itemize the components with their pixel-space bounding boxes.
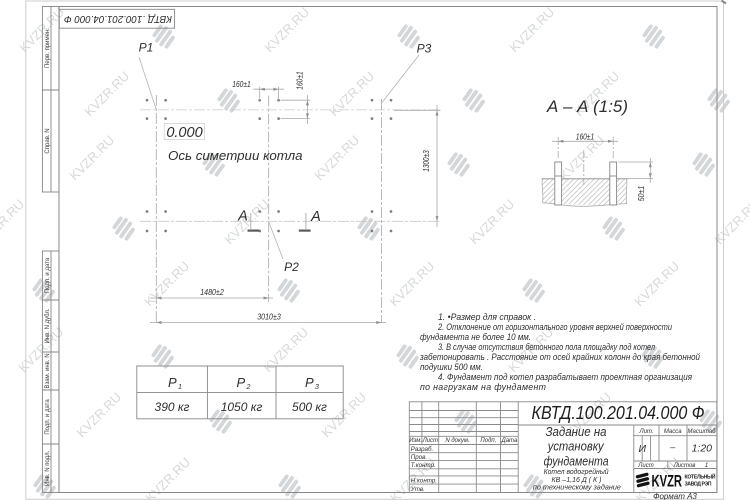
svg-text:–: – xyxy=(670,442,675,452)
svg-text:Дата: Дата xyxy=(500,438,517,444)
svg-text:160±1: 160±1 xyxy=(295,71,305,90)
svg-text:160±1: 160±1 xyxy=(576,131,595,141)
svg-text:забетонировать . Расстояние о: забетонировать . Расстояние от осей край… xyxy=(419,352,700,362)
svg-text:Лист: Лист xyxy=(637,463,653,469)
svg-text:A: A xyxy=(237,209,248,225)
svg-text:1480±2: 1480±2 xyxy=(200,287,224,297)
svg-text:Изм.: Изм. xyxy=(409,438,422,444)
svg-text:3: 3 xyxy=(315,384,319,391)
svg-text:P1: P1 xyxy=(139,41,154,55)
svg-text:КОТЕЛЬНЫЙ: КОТЕЛЬНЫЙ xyxy=(685,472,716,480)
svg-text:50±1: 50±1 xyxy=(636,186,646,202)
svg-text:Инв. N подл.: Инв. N подл. xyxy=(45,450,51,486)
svg-text:по техническому задание: по техническому задание xyxy=(533,483,621,492)
svg-text:КВТД.100.201.04.000 Ф: КВТД.100.201.04.000 Ф xyxy=(532,403,705,423)
svg-text:500 кг: 500 кг xyxy=(292,400,327,414)
svg-text:ЗАВОД РЭП: ЗАВОД РЭП xyxy=(685,481,712,487)
svg-text:по нагрузкам на фундамент: по нагрузкам на фундамент xyxy=(420,382,546,392)
svg-text:0.000: 0.000 xyxy=(166,125,202,141)
svg-text:4. Фундамент под котел разраб: 4. Фундамент под котел разрабатывает про… xyxy=(438,372,692,382)
svg-text:P2: P2 xyxy=(284,260,299,274)
svg-text:фундамента не более 10 мм.: фундамента не более 10 мм. xyxy=(420,332,531,342)
svg-text:1050 кг: 1050 кг xyxy=(221,400,263,414)
svg-text:Утв.: Утв. xyxy=(410,486,425,493)
svg-text:Н.контр.: Н.контр. xyxy=(411,478,437,485)
svg-text:3010±3: 3010±3 xyxy=(257,312,281,322)
svg-text:Р: Р xyxy=(237,375,246,390)
svg-text:P3: P3 xyxy=(417,42,432,56)
svg-text:И: И xyxy=(639,443,647,455)
svg-text:Подп.: Подп. xyxy=(480,438,496,444)
svg-text:установку: установку xyxy=(547,440,605,454)
svg-text:Инв. N дубл.: Инв. N дубл. xyxy=(45,308,51,343)
svg-text:390 кг: 390 кг xyxy=(155,400,190,414)
svg-text:1:20: 1:20 xyxy=(692,443,713,455)
svg-text:Лит.: Лит. xyxy=(638,429,653,435)
svg-text:Т.контр.: Т.контр. xyxy=(411,462,436,469)
svg-text:Справ. N: Справ. N xyxy=(45,128,51,153)
svg-text:KVZR: KVZR xyxy=(652,472,683,491)
svg-text:Масштаб: Масштаб xyxy=(687,429,716,435)
svg-text:1: 1 xyxy=(705,463,708,469)
svg-text:Подп. и дата: Подп. и дата xyxy=(45,257,51,293)
svg-text:1300±3: 1300±3 xyxy=(421,150,431,172)
svg-text:2: 2 xyxy=(246,384,251,391)
svg-text:Р: Р xyxy=(168,375,177,390)
svg-text:3. В случае отсутствия бетонн: 3. В случае отсутствия бетонного пола пл… xyxy=(438,342,655,352)
svg-text:1: 1 xyxy=(178,384,182,391)
svg-text:Лист: Лист xyxy=(422,438,438,444)
svg-text:N докум.: N докум. xyxy=(445,438,469,444)
svg-text:160±1: 160±1 xyxy=(232,79,251,89)
svg-text:A: A xyxy=(310,209,321,225)
svg-text:Формат А3: Формат А3 xyxy=(653,492,697,500)
svg-text:2. Отклонение от горизонтальн: 2. Отклонение от горизонтального уровня … xyxy=(437,322,672,332)
svg-text:1. •Размер для справок .: 1. •Размер для справок . xyxy=(438,312,536,322)
svg-text:Масса: Масса xyxy=(664,429,682,435)
svg-text:Подп. и дата: Подп. и дата xyxy=(45,399,51,435)
svg-text:Р: Р xyxy=(305,375,314,390)
svg-text:Взам. инв. N: Взам. инв. N xyxy=(45,353,51,388)
svg-text:Ось симетрии котла: Ось симетрии котла xyxy=(168,148,303,163)
svg-text:Перв. примен.: Перв. примен. xyxy=(45,28,51,68)
svg-text:Листов: Листов xyxy=(673,463,696,469)
svg-text:Пров.: Пров. xyxy=(411,454,427,461)
svg-text:Задание на: Задание на xyxy=(546,425,607,439)
svg-text:А – А (1:5): А – А (1:5) xyxy=(546,98,628,116)
svg-text:Разраб.: Разраб. xyxy=(411,446,433,453)
svg-text:подушки 500 мм.: подушки 500 мм. xyxy=(420,362,483,372)
svg-text:КВТД .100.201.04.000 Ф: КВТД .100.201.04.000 Ф xyxy=(64,13,172,25)
